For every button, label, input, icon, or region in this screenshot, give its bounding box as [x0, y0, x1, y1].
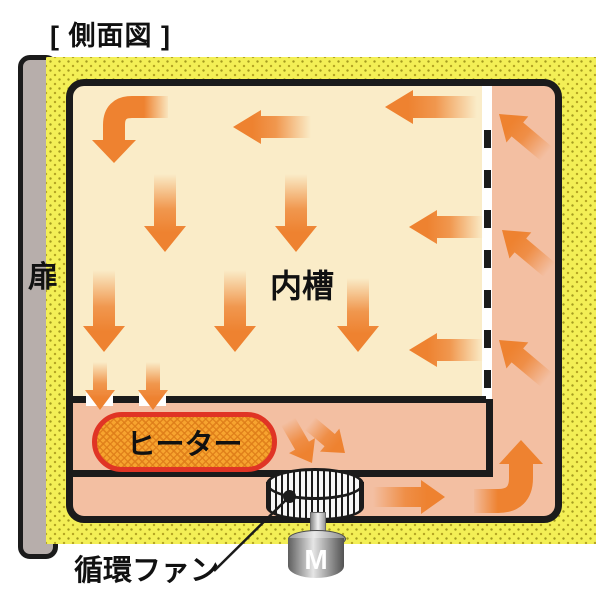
page-title: [ 側面図 ]	[50, 14, 171, 53]
door-label: 扉	[28, 252, 58, 296]
inner-chamber-label: 内槽	[270, 261, 334, 307]
side-view-diagram: [ 側面図 ] ヒーター	[0, 0, 600, 600]
circulation-fan	[266, 468, 364, 518]
motor: M	[288, 538, 344, 578]
circulation-fan-label: 循環ファン	[74, 547, 219, 589]
motor-label: M	[304, 544, 327, 576]
fan-pointer-dot	[283, 490, 296, 503]
fan-top	[266, 468, 364, 500]
